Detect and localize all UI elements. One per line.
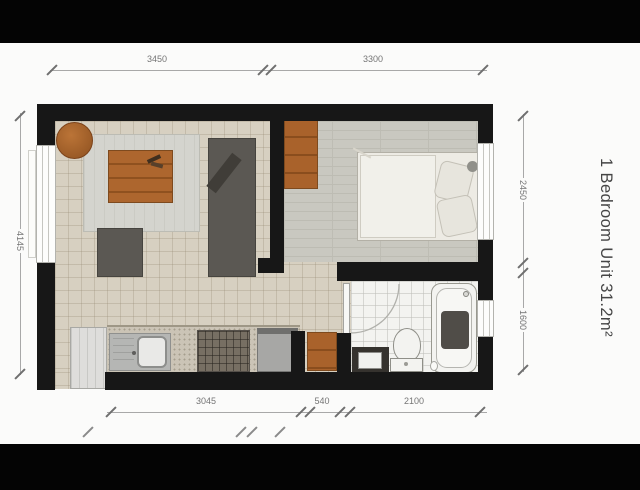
dim-line-right (523, 114, 524, 372)
dim-label-bottom-2: 540 (312, 396, 331, 406)
wall-bathroom-left (337, 333, 351, 372)
wall-entry-stub (291, 331, 305, 372)
cooktop (197, 330, 250, 372)
sink-drainer (113, 338, 134, 366)
sink-basin (137, 336, 167, 368)
round-side-table (56, 122, 93, 159)
vanity-basin (358, 352, 382, 369)
dim-label-bottom-3: 2100 (402, 396, 426, 406)
wall-top (37, 104, 493, 121)
wall-bedroom-bathroom (337, 262, 493, 281)
wall-right-top (478, 104, 493, 143)
bed-duvet (360, 155, 436, 238)
partial-dim-tick (235, 426, 246, 437)
wall-left-lower (37, 263, 55, 390)
wall-living-bedroom-divider (270, 121, 284, 273)
dim-label-right-lower: 1600 (518, 308, 528, 332)
bathroom-window (477, 300, 494, 337)
toilet-flush-button (404, 362, 408, 366)
living-window (36, 145, 56, 263)
dim-label-top-left: 3450 (145, 54, 169, 64)
bathroom-door-leaf (343, 283, 350, 334)
wardrobe (284, 119, 318, 189)
bottom-letterbox-bar (0, 444, 640, 490)
bath-caddy (441, 311, 469, 349)
partial-dim-tick (82, 426, 93, 437)
wall-divider-stub (258, 258, 270, 273)
wall-bottom (105, 372, 493, 390)
toilet-bowl (393, 328, 421, 362)
wall-right-bottom (478, 337, 493, 390)
top-letterbox-bar (0, 0, 640, 43)
refrigerator (70, 327, 107, 389)
coffee-table (108, 150, 173, 203)
dim-label-left: 4145 (15, 229, 25, 253)
dim-label-bottom-1: 3045 (194, 396, 218, 406)
pillow (435, 194, 478, 239)
partial-dim-tick (274, 426, 285, 437)
dim-label-top-right: 3300 (361, 54, 385, 64)
partial-dim-tick (246, 426, 257, 437)
tub-faucet (463, 291, 469, 297)
sink-faucet (132, 351, 136, 355)
ottoman (97, 228, 143, 277)
bedroom-window (477, 143, 494, 240)
plan-title: 1 Bedroom Unit 31.2m² (596, 104, 615, 390)
living-window-sill (28, 150, 36, 258)
dim-label-right-upper: 2450 (518, 178, 528, 202)
floor-plan-image: 3450 3300 4145 2450 1600 3045 540 2100 1… (0, 0, 640, 490)
wall-left-upper (37, 104, 55, 145)
bath-item (430, 361, 438, 371)
entry-cabinet (307, 332, 337, 371)
